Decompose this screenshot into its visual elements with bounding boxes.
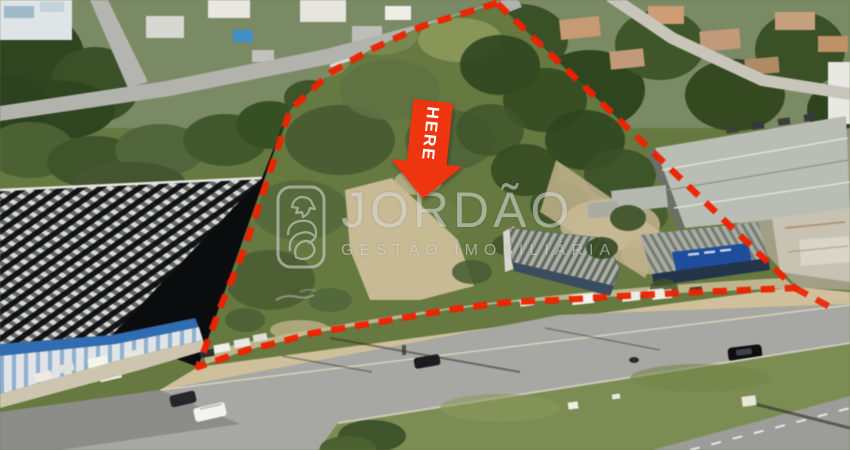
here-marker-label: HERE [395,93,465,175]
here-marker: HERE [385,97,473,205]
swimming-pool [233,30,253,42]
aerial-photo-scene [0,0,850,450]
aerial-property-photo: JORDÃO GESTÃO IMOBILIÁRIA HERE [0,0,850,450]
median-marker [741,395,756,407]
motorcycle [629,357,639,363]
